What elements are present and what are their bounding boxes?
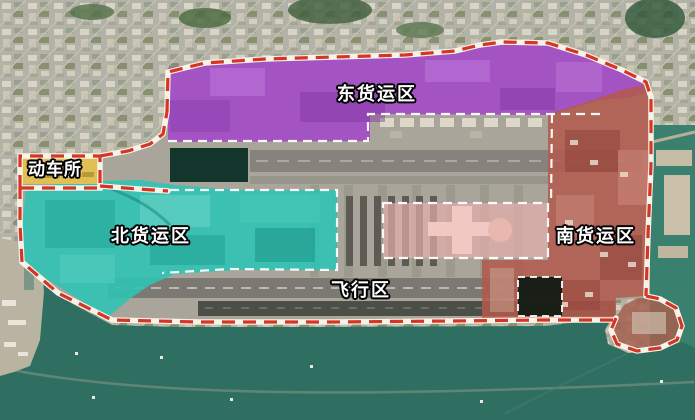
terminal-area — [383, 203, 548, 258]
satellite-map: 东货运区 动车所 北货运区 南货运区 飞行区 — [0, 0, 695, 420]
label-north-cargo-zone: 北货运区 — [111, 227, 191, 245]
label-emu-depot: 动车所 — [28, 161, 82, 178]
label-east-cargo-zone: 东货运区 — [337, 85, 417, 103]
map-artwork — [0, 0, 695, 420]
label-south-cargo-zone: 南货运区 — [556, 227, 636, 245]
label-airfield-zone: 飞行区 — [331, 281, 391, 299]
dark-patch — [518, 277, 562, 316]
